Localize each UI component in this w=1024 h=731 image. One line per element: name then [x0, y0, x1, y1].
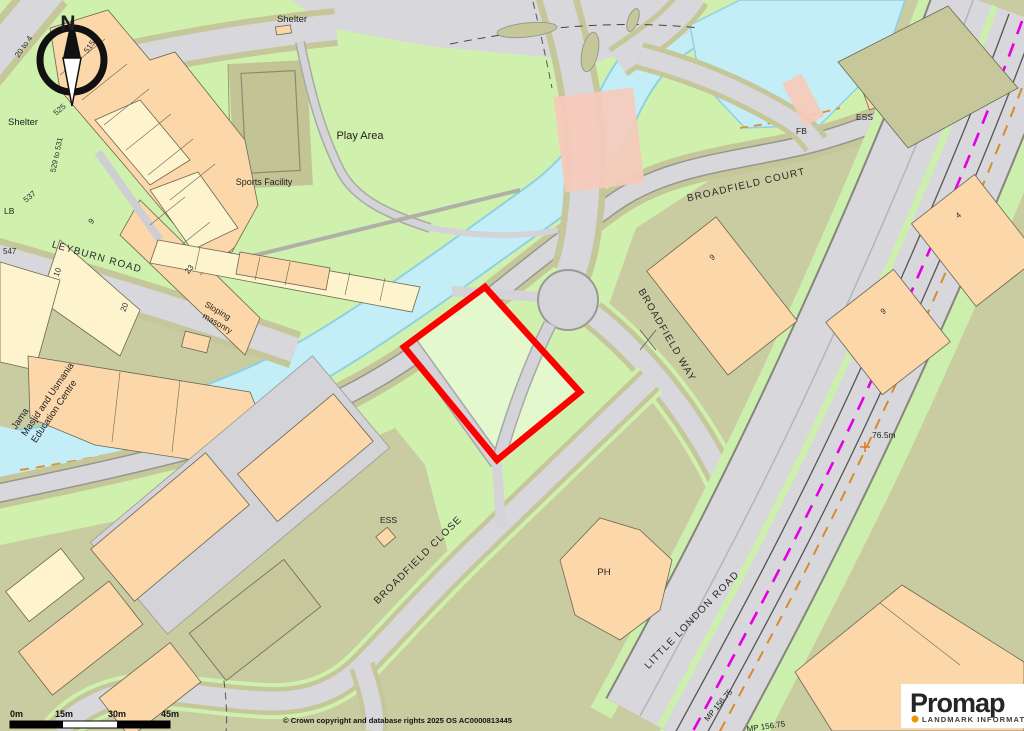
plot-path-south	[497, 463, 501, 528]
scale-15m: 15m	[55, 709, 73, 719]
copyright-text: © Crown copyright and database rights 20…	[283, 716, 513, 725]
map-canvas: Shelter Shelter Play Area Sports Facilit…	[0, 0, 1024, 731]
compass-n-letter: N	[60, 12, 75, 35]
logo-tagline-text: LANDMARK INFORMATION	[922, 715, 1024, 724]
label-play-area: Play Area	[336, 130, 384, 142]
map-svg: Shelter Shelter Play Area Sports Facilit…	[0, 0, 1024, 731]
label-spot-height: 76.5m	[872, 430, 896, 440]
promap-logo: Promap LANDMARK INFORMATION	[901, 684, 1024, 728]
label-shelter-top: Shelter	[277, 14, 307, 25]
road-bridge	[553, 87, 644, 192]
scale-45m: 45m	[161, 709, 179, 719]
label-ess-west: ESS	[380, 515, 397, 525]
label-sports-facility: Sports Facility	[236, 177, 293, 187]
label-ess-north: ESS	[856, 112, 873, 122]
label-ph: PH	[597, 567, 610, 578]
label-lb: LB	[4, 206, 15, 216]
scale-0m: 0m	[10, 709, 23, 719]
logo-brand-text: Promap	[910, 688, 1005, 718]
label-fb: FB	[796, 126, 807, 136]
road-bridge-deck	[553, 87, 644, 192]
shelter-building	[276, 25, 292, 35]
label-shelter-left: Shelter	[8, 117, 38, 128]
roundabout-circle	[538, 270, 598, 330]
scale-30m: 30m	[108, 709, 126, 719]
logo-orange-dot-icon	[912, 716, 919, 723]
scale-bar-seg2	[117, 721, 170, 728]
number-547: 547	[3, 247, 17, 256]
scale-bar-seg1	[10, 721, 63, 728]
